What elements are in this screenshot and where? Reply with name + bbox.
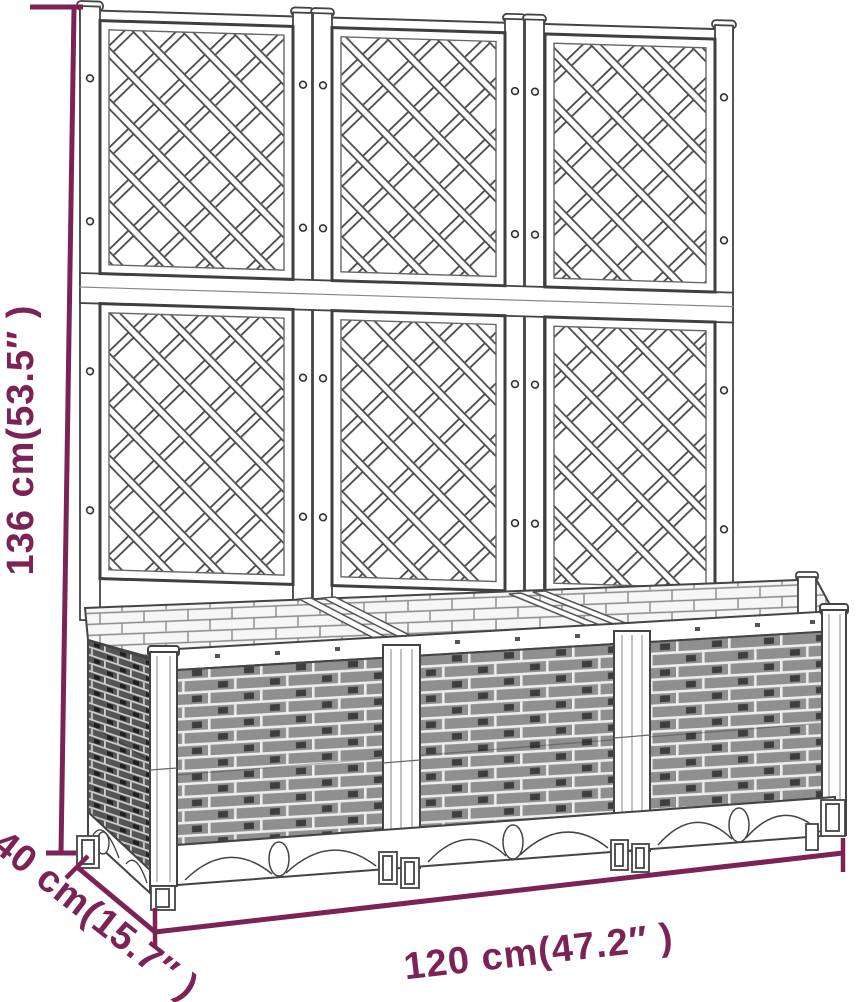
- lattice-panel: [100, 304, 293, 585]
- height-label: 136 cm(53.5″ ): [0, 305, 42, 576]
- lattice-panel: [332, 311, 505, 591]
- lattice-panel: [332, 28, 505, 286]
- lattice-panel: [545, 317, 715, 597]
- trellis-panels-row2: [100, 304, 715, 597]
- planter-corner-post-left: [148, 646, 179, 886]
- product-dimension-diagram: 136 cm(53.5″ ) 120 cm(47.2″ ) 40 cm(15.7…: [0, 0, 859, 1002]
- lattice-panel: [100, 21, 293, 280]
- planter-box: [77, 572, 848, 910]
- trellis: [77, 1, 736, 640]
- width-label: 120 cm(47.2″ ): [402, 916, 676, 988]
- diagram-canvas: 136 cm(53.5″ ) 120 cm(47.2″ ) 40 cm(15.7…: [0, 0, 859, 1002]
- trellis-panels-row1: [100, 21, 715, 292]
- lattice-panel: [545, 34, 715, 292]
